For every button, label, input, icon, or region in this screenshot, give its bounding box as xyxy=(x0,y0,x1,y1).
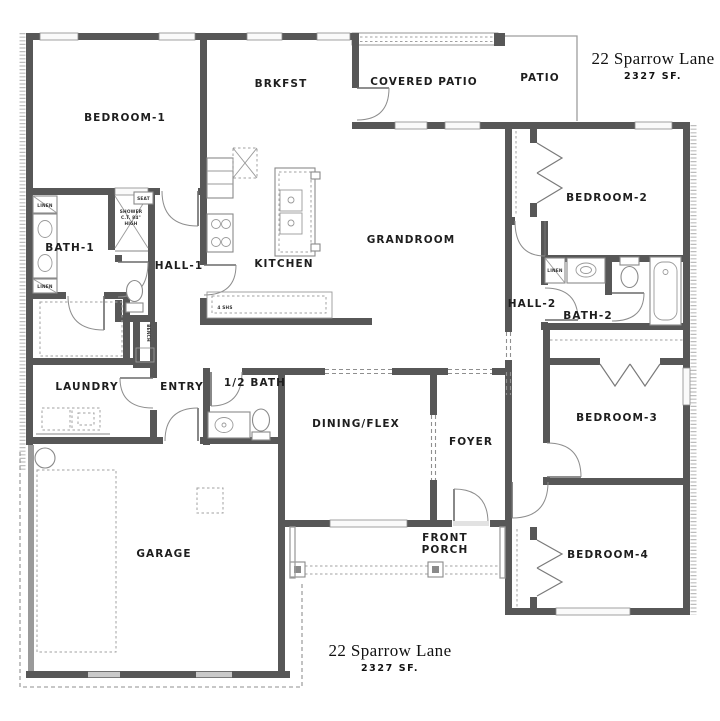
bedroom2-door-part xyxy=(515,221,545,256)
wall-oven-cabinet-part xyxy=(207,158,233,198)
interior-walls-part xyxy=(660,358,683,365)
interior-walls-part xyxy=(108,188,115,250)
interior-walls-part xyxy=(505,122,512,217)
interior-walls-part xyxy=(198,188,207,195)
half-bath-vanity xyxy=(208,412,250,438)
half-bath-vanity-part xyxy=(208,412,250,438)
interior-walls-part xyxy=(200,33,207,265)
room-label-entry: ENTRY xyxy=(160,381,204,393)
interior-walls-part xyxy=(200,318,372,325)
exterior-walls-part xyxy=(26,33,33,445)
bedroom3-closet-bifold xyxy=(600,364,630,386)
front-door-part xyxy=(454,489,488,523)
bedroom1-door xyxy=(162,191,198,226)
roof-edge xyxy=(352,33,505,46)
room-label-bath1: BATH-1 xyxy=(45,242,95,254)
toilet-part xyxy=(127,281,143,302)
plan-title-address-top: 22 Sparrow Lane xyxy=(591,49,714,68)
bedroom4-closet-bifold xyxy=(537,540,562,568)
room-label-covered-patio: COVERED PATIO xyxy=(370,76,478,88)
room-label-bath2: BATH-2 xyxy=(563,310,613,322)
interior-walls-part xyxy=(430,368,437,415)
exterior-walls-part xyxy=(26,671,290,678)
exterior-walls-part xyxy=(28,445,34,678)
bath2-vanity xyxy=(567,258,605,283)
bench-label: BENCH xyxy=(145,324,151,342)
washer-dryer-part xyxy=(42,408,70,430)
garage-door xyxy=(196,672,232,678)
bedroom4-door-part xyxy=(512,482,548,518)
bifold-doors xyxy=(537,143,660,596)
linen-label: LINEN xyxy=(547,268,563,274)
interior-walls-part xyxy=(150,322,157,365)
window xyxy=(330,520,407,527)
master-closet-door-part xyxy=(68,296,104,330)
toilet-part xyxy=(621,267,638,288)
bath2-inner-door-part xyxy=(612,293,644,321)
plan-title-address-bottom: 22 Sparrow Lane xyxy=(328,641,451,660)
plan-title-area-top: 2327 SF. xyxy=(624,71,682,82)
interior-walls-part xyxy=(505,478,512,485)
garage-door xyxy=(88,672,120,678)
garage-dashed-box xyxy=(197,488,223,513)
interior-walls-part xyxy=(505,217,515,225)
bedroom3-closet-bifold xyxy=(630,364,660,386)
bedroom2-closet-bifold xyxy=(537,143,562,173)
toilet-part xyxy=(126,303,143,312)
room-label-foyer: FOYER xyxy=(449,436,493,448)
bath2-inner-door xyxy=(612,293,644,321)
kitchen-island-part xyxy=(275,168,315,256)
laundry-door xyxy=(120,378,153,408)
patio-door-part xyxy=(357,88,389,120)
interior-walls-part xyxy=(115,315,155,322)
room-label-kitchen: KITCHEN xyxy=(254,258,313,270)
cased-openings xyxy=(325,332,511,480)
pantry-counter xyxy=(207,292,332,318)
bedroom4-closet-bifold xyxy=(537,568,562,596)
interior-walls-part xyxy=(150,410,157,444)
window xyxy=(445,122,480,129)
pantry-shelves-label: 4 SHS xyxy=(217,305,232,311)
interior-walls-part xyxy=(505,485,512,615)
closet-shelf-lines-part xyxy=(40,302,122,356)
interior-walls-part xyxy=(530,527,537,540)
room-label-patio: PATIO xyxy=(520,72,560,84)
patio-door xyxy=(357,88,389,120)
kitchen-island-part xyxy=(311,244,320,251)
kitchen-door xyxy=(204,265,236,295)
bedroom3-door xyxy=(547,443,581,477)
toilet-part xyxy=(620,257,639,265)
front-door xyxy=(454,489,488,523)
bedroom1-door-part xyxy=(162,191,198,226)
floor-plan-page: BEDROOM-1 BRKFST COVERED PATIO PATIO BED… xyxy=(0,0,720,721)
interior-walls-part xyxy=(26,358,133,365)
porch-side-rail xyxy=(500,527,505,578)
garage-storage-outline xyxy=(37,470,116,652)
linen-label: LINEN xyxy=(37,203,53,209)
washer-dryer-part xyxy=(72,408,100,430)
interior-walls-part xyxy=(530,597,537,615)
exterior-walls-part xyxy=(352,122,505,129)
room-label-brkfst: BRKFST xyxy=(255,78,308,90)
interior-walls-part xyxy=(392,368,448,375)
interior-walls-part xyxy=(505,225,512,332)
water-heater xyxy=(35,448,55,468)
interior-walls-part xyxy=(505,360,512,368)
range xyxy=(207,214,233,252)
toilet xyxy=(252,409,270,440)
range-part xyxy=(207,214,233,252)
bathtub xyxy=(650,257,681,325)
room-label-hall2: HALL-2 xyxy=(508,298,557,310)
interior-walls-part xyxy=(242,368,325,375)
front-door-threshold xyxy=(453,521,489,526)
bedroom3-door-part xyxy=(547,443,581,477)
bedroom2-closet-bifold xyxy=(537,173,562,203)
garage-slab-line xyxy=(20,452,302,687)
porch-column xyxy=(428,562,443,577)
washer-dryer-part xyxy=(78,413,94,425)
window xyxy=(395,122,427,129)
plan-title-area-bottom: 2327 SF. xyxy=(361,663,419,674)
room-label-bedroom3: BEDROOM-3 xyxy=(576,412,658,424)
room-label-laundry: LAUNDRY xyxy=(55,381,118,393)
interior-walls-part xyxy=(148,188,155,322)
toilet-part xyxy=(253,409,270,431)
patio-post xyxy=(494,33,505,46)
room-label-hall1: HALL-1 xyxy=(155,260,204,272)
interior-walls-part xyxy=(543,477,550,485)
window xyxy=(40,33,78,40)
exterior-walls-part xyxy=(26,437,163,444)
porch-column xyxy=(290,562,305,577)
wall-oven-cabinet xyxy=(207,158,233,198)
washer-dryer xyxy=(36,408,110,434)
toilet xyxy=(620,257,639,288)
room-label-garage: GARAGE xyxy=(136,548,191,560)
interior-walls-part xyxy=(530,203,537,217)
window xyxy=(317,33,350,40)
toilet-part xyxy=(252,432,270,440)
room-label-front-porch: FRONT xyxy=(422,532,468,544)
bath2-vanity-part xyxy=(567,258,605,283)
laundry-door-part xyxy=(120,378,153,408)
window xyxy=(159,33,195,40)
toilet xyxy=(126,281,143,313)
kitchen-island xyxy=(275,168,320,256)
room-label-bedroom2: BEDROOM-2 xyxy=(566,192,648,204)
kitchen-door-part xyxy=(204,265,236,295)
interior-walls-part xyxy=(605,255,612,295)
porch-column-part xyxy=(432,566,439,573)
interior-walls-part xyxy=(430,480,437,527)
plan-titles: 22 Sparrow Lane 2327 SF. 22 Sparrow Lane… xyxy=(328,49,714,674)
master-closet-door xyxy=(68,296,104,330)
shower-label: SHOWER xyxy=(120,209,143,215)
exterior-walls-part xyxy=(352,33,359,88)
room-label-bedroom1: BEDROOM-1 xyxy=(84,112,166,124)
garage-entry-door-part xyxy=(165,408,198,441)
interior-walls-part xyxy=(543,365,550,443)
window xyxy=(683,368,690,405)
window xyxy=(556,608,630,615)
window xyxy=(247,33,282,40)
room-label-dining: DINING/FLEX xyxy=(312,418,400,430)
seat-label: SEAT xyxy=(137,196,150,202)
shower-label: HIGH xyxy=(124,221,137,227)
window xyxy=(635,122,672,129)
refrigerator xyxy=(233,148,257,178)
room-label-front-porch: PORCH xyxy=(422,544,469,556)
room-label-bedroom4: BEDROOM-4 xyxy=(567,549,649,561)
floor-plan-drawing: BEDROOM-1 BRKFST COVERED PATIO PATIO BED… xyxy=(0,0,720,721)
roof-edge-part xyxy=(352,33,498,45)
shower-label: C.T. 84" xyxy=(121,215,141,221)
bedroom2-door xyxy=(515,221,545,256)
garage-entry-door xyxy=(165,408,198,441)
room-label-half-bath: 1/2 BATH xyxy=(224,377,286,389)
kitchen-island-part xyxy=(311,172,320,179)
interior-walls-part xyxy=(530,129,537,143)
interior-walls-part xyxy=(543,358,600,365)
bedroom4-door xyxy=(512,482,548,518)
linen-label: LINEN xyxy=(37,284,53,290)
interior-walls-part xyxy=(150,365,157,378)
interior-walls-part xyxy=(550,478,690,485)
interior-walls-part xyxy=(115,255,122,262)
room-label-grandroom: GRANDROOM xyxy=(367,234,456,246)
